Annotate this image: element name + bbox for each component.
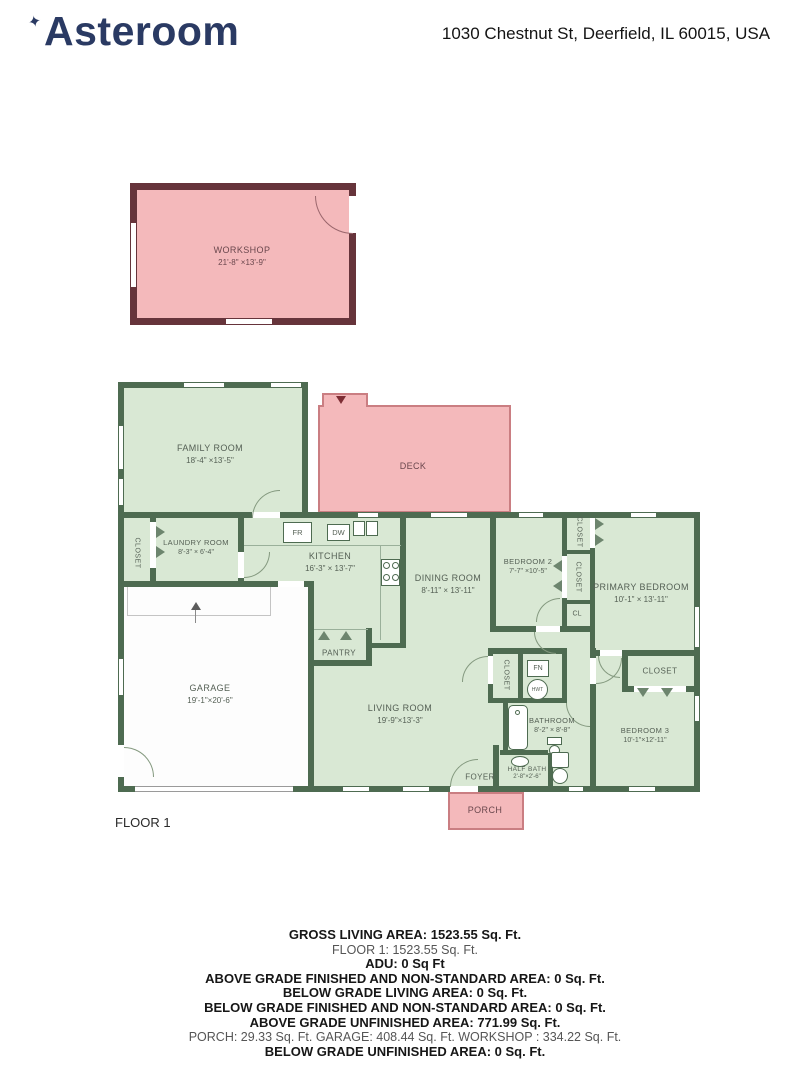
burner-icon <box>383 562 390 569</box>
window <box>225 318 273 325</box>
bifold-door-icon <box>553 560 562 572</box>
property-address: 1030 Chestnut St, Deerfield, IL 60015, U… <box>420 24 792 44</box>
wall <box>238 578 244 587</box>
sink <box>353 521 365 536</box>
deck-outline <box>318 405 511 513</box>
toilet <box>547 737 562 745</box>
room-label-primary: PRIMARY BEDROOM 10'-1" × 13'-11" <box>593 582 689 604</box>
window <box>628 786 656 792</box>
garage-arrow-icon <box>191 602 201 610</box>
room-label-foyer: FOYER <box>465 773 495 782</box>
window <box>357 512 379 518</box>
window <box>130 222 137 288</box>
window <box>342 786 370 792</box>
room-label-kitchen: KITCHEN 16'-3" × 13'-7" <box>305 551 355 573</box>
window <box>430 512 468 518</box>
toilet-bowl <box>552 768 568 784</box>
closet-opening <box>562 556 567 598</box>
floor-label: FLOOR 1 <box>115 815 171 830</box>
closet-label: CLOSET <box>503 659 510 690</box>
room-label-laundry: LAUNDRY ROOM 8'-3" × 6'-4" <box>163 538 229 556</box>
wall <box>308 581 314 787</box>
window <box>630 512 657 518</box>
wall <box>490 512 496 632</box>
wall <box>314 660 372 666</box>
bifold-door-icon <box>340 631 352 640</box>
closet-label: CLOSET <box>575 561 582 592</box>
bifold-door-icon <box>661 688 673 697</box>
counter-line <box>244 545 401 546</box>
window <box>118 425 124 470</box>
window <box>568 786 584 792</box>
summary-line: ABOVE GRADE UNFINISHED AREA: 771.99 Sq. … <box>0 1016 810 1031</box>
wall <box>238 512 244 552</box>
room-label-porch: PORCH <box>468 805 503 815</box>
door-opening <box>278 581 304 587</box>
room-label-deck: DECK <box>400 461 427 471</box>
window <box>183 382 225 388</box>
window <box>118 658 124 696</box>
room-label-family: FAMILY ROOM 18'-4" ×13'-5" <box>177 443 243 465</box>
summary-line: ABOVE GRADE FINISHED AND NON-STANDARD AR… <box>0 972 810 987</box>
dishwasher: DW <box>327 524 350 541</box>
wall <box>488 698 567 703</box>
bifold-door-icon <box>318 631 330 640</box>
window <box>694 606 700 648</box>
room-label-dining: DINING ROOM 8'-11" × 13'-11" <box>415 573 481 595</box>
room-label-bathroom: BATHROOM 8'-2" × 8'-8" <box>529 716 575 734</box>
drain-icon <box>515 710 520 715</box>
room-label-halfbath: HALF BATH 2'-8"×2'-6" <box>508 766 547 780</box>
wall <box>500 750 548 755</box>
floorplan-page: { "header": { "brand": "Asteroom", "addr… <box>0 0 810 1080</box>
summary-line: BELOW GRADE UNFINISHED AREA: 0 Sq. Ft. <box>0 1045 810 1060</box>
summary-line: GROSS LIVING AREA: 1523.55 Sq. Ft. <box>0 928 810 943</box>
sparkle-icon: ✦ <box>26 11 43 33</box>
toilet-tank <box>551 752 569 768</box>
window <box>402 786 430 792</box>
wall <box>622 656 628 686</box>
room-label-workshop: WORKSHOP 21'-8" ×13'-9" <box>214 245 271 267</box>
wall <box>400 512 406 648</box>
burner-icon <box>392 574 399 581</box>
window <box>270 382 302 388</box>
summary-line: BELOW GRADE LIVING AREA: 0 Sq. Ft. <box>0 986 810 1001</box>
closet-label: CLOSET <box>642 667 677 676</box>
bifold-door-icon <box>595 534 604 546</box>
window <box>694 695 700 722</box>
room-label-bedroom3: BEDROOM 3 10'-1"×12'-11" <box>621 726 670 744</box>
summary-line: FLOOR 1: 1523.55 Sq. Ft. <box>0 943 810 958</box>
water-heater: HWT <box>527 679 548 700</box>
wall <box>562 550 595 554</box>
furnace: FN <box>527 660 549 677</box>
garage-door-opening <box>135 786 293 792</box>
closet-label: CL <box>573 611 582 618</box>
bifold-door-icon <box>553 580 562 592</box>
window <box>518 512 544 518</box>
summary-line: BELOW GRADE FINISHED AND NON-STANDARD AR… <box>0 1001 810 1016</box>
window <box>118 478 124 506</box>
entry-arrow-icon <box>336 396 346 404</box>
summary-line: ADU: 0 Sq Ft <box>0 957 810 972</box>
wall <box>562 648 567 703</box>
wall <box>370 643 406 648</box>
bifold-door-icon <box>595 518 604 530</box>
burner-icon <box>383 574 390 581</box>
area-summary: GROSS LIVING AREA: 1523.55 Sq. Ft. FLOOR… <box>0 928 810 1059</box>
brand-logo: Asteroom <box>44 8 239 55</box>
door-opening <box>488 656 493 684</box>
garage-arrow-stem <box>195 610 196 623</box>
room-label-living: LIVING ROOM 19'-9"×13'-3" <box>368 703 432 725</box>
wall <box>518 653 523 698</box>
bifold-door-icon <box>637 688 649 697</box>
summary-line: PORCH: 29.33 Sq. Ft. GARAGE: 408.44 Sq. … <box>0 1030 810 1045</box>
closet-label: CLOSET <box>576 516 583 547</box>
wall <box>562 600 595 604</box>
bifold-door-icon <box>156 526 165 538</box>
closet-label: CLOSET <box>134 537 141 568</box>
burner-icon <box>392 562 399 569</box>
pantry-opening-line <box>314 629 368 630</box>
room-label-pantry: PANTRY <box>322 649 356 658</box>
fridge: FR <box>283 522 312 543</box>
room-label-garage: GARAGE 19'-1"×20'-6" <box>187 683 232 705</box>
sink <box>366 521 378 536</box>
room-label-bedroom2: BEDROOM 2 7'-7" ×10'-5" <box>504 557 553 575</box>
